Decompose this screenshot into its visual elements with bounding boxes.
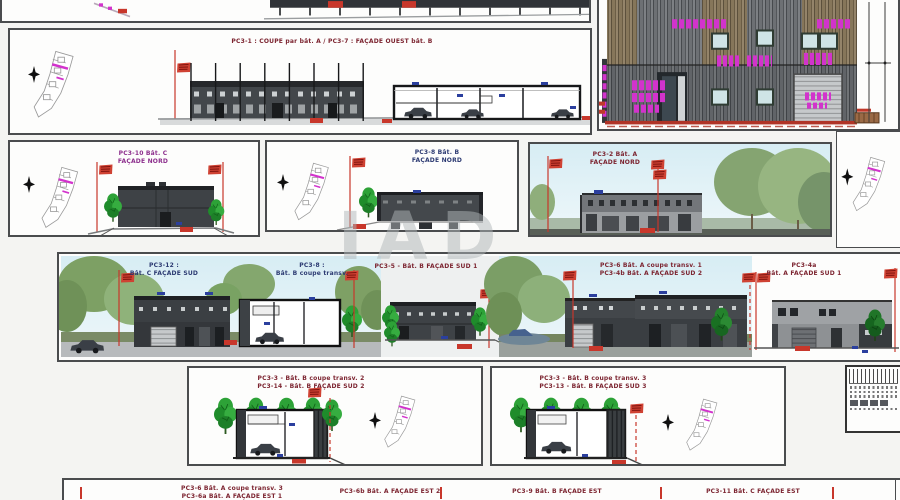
facade-couleur-drawing (599, 0, 898, 129)
dimension-tick (80, 487, 82, 499)
panel-coupe-transv-3: PC3-3 - Bât. B coupe transv. 3PC3-13 - B… (490, 366, 786, 466)
facade-sud-c (134, 292, 230, 347)
key-plan-drawing (837, 132, 900, 247)
legend-text-line (850, 408, 897, 411)
legend-text-line (850, 386, 897, 389)
panel-title: PC3-2 Bât. AFAÇADE NORD (590, 151, 640, 167)
red-label (224, 340, 237, 345)
key-plan-sketch (853, 157, 885, 210)
key-plan-sketch (34, 51, 73, 117)
panel-top-cut (0, 0, 591, 23)
key-plan-sketch (385, 396, 415, 447)
panel-title: PC3-6 Bât. A coupe transv. 3PC3-6a Bât. … (181, 485, 283, 500)
section (527, 406, 625, 458)
ground-line (88, 228, 234, 234)
panel-title: PC3-1 : COUPE par bât. A / PC3-7 : FAÇAD… (231, 38, 432, 46)
tree-icon (359, 187, 378, 217)
panel-title: PC3-6 Bât. A coupe transv. 1PC3-4b Bât. … (600, 262, 703, 278)
dimension-flag-icon (208, 165, 222, 175)
mini-sketch (94, 3, 130, 16)
facade-nord-a-drawing (530, 144, 830, 235)
tree-icon (214, 398, 237, 434)
dimension-flag-icon (352, 158, 366, 168)
dimension-flag-icon (177, 63, 191, 73)
panel-facade-nord-a: PC3-2 Bât. AFAÇADE NORD (528, 142, 832, 237)
north-arrow-icon (662, 414, 674, 431)
dimension-flag-icon (630, 404, 644, 414)
panel-title: PC3-6b Bât. A FAÇADE EST 2 (340, 488, 441, 496)
panel-title: PC3-8 :Bât. B coupe transv. (276, 262, 348, 278)
panel-facades-sud: PC3-12 :Bât. C FAÇADE SUD PC3-8 :Bât. B … (57, 252, 900, 362)
panel-title: PC3-3 - Bât. B coupe transv. 3PC3-13 - B… (539, 375, 646, 391)
panel-facade-nord-b: PC3-8 Bât. BFAÇADE NORD (265, 140, 519, 232)
panel-title: PC3-10 Bât. CFAÇADE NORD (118, 150, 168, 166)
dimension-flag-icon (653, 170, 667, 180)
dimension-flag-icon (742, 273, 756, 283)
north-arrow-icon (277, 174, 289, 191)
dimension-flag-icon (651, 160, 665, 170)
dimension-lines (865, 2, 891, 122)
coupe-transv-b (240, 297, 340, 346)
panel-facade-nord-c: PC3-10 Bât. CFAÇADE NORD (8, 140, 260, 237)
panel-coupe-a-facade-ouest-b: PC3-1 : COUPE par bât. A / PC3-7 : FAÇAD… (8, 28, 592, 135)
dimension-flag-icon (563, 271, 577, 281)
sheet-edge-line (895, 480, 897, 500)
key-plan-sketch (295, 163, 328, 219)
legend-blocks-row (850, 400, 897, 406)
legend-symbols-row (849, 369, 898, 384)
red-label (457, 344, 472, 349)
red-label (589, 346, 603, 351)
facade-ouest-b (190, 63, 364, 121)
legend-text-line (850, 395, 897, 398)
north-arrow-icon (369, 412, 381, 429)
red-label (640, 228, 655, 233)
north-arrow-icon (23, 176, 35, 193)
panel-title: PC3-5 - Bât. B FAÇADE SUD 1 (375, 263, 478, 271)
red-label (292, 459, 306, 464)
section (237, 406, 327, 458)
dimension-flag-icon (99, 165, 113, 175)
building (580, 190, 702, 233)
top-cut-drawing (2, 0, 589, 21)
panel-title: PC3-12 :Bât. C FAÇADE SUD (130, 262, 198, 278)
red-label (353, 224, 366, 229)
dimension-tick (832, 487, 834, 499)
elevation-base (264, 0, 589, 19)
panel-facade-couleur (597, 0, 900, 131)
stair-structure (855, 109, 879, 123)
building (118, 182, 214, 227)
panel-title: PC3-4aBât. A FAÇADE SUD 1 (766, 262, 841, 278)
facade-sud-b1 (390, 302, 476, 340)
panel-coupe-transv-2: PC3-3 - Bât. B coupe transv. 2PC3-14 - B… (187, 366, 483, 466)
north-arrow-icon (28, 66, 40, 83)
dimension-flag-icon (884, 269, 898, 279)
north-arrow-icon (841, 168, 853, 185)
panel-title: PC3-9 Bât. B FAÇADE EST (512, 488, 602, 496)
legend-text-line (850, 391, 897, 394)
red-label (795, 346, 810, 351)
red-label (180, 227, 193, 232)
building (377, 190, 483, 230)
key-plan (28, 51, 73, 117)
facade-nord-b-drawing (267, 142, 517, 230)
panel-title: PC3-8 Bât. BFAÇADE NORD (412, 149, 462, 165)
dimension-tick (660, 487, 662, 499)
dimension-flag-icon (549, 159, 563, 169)
key-plan-sketch (42, 167, 78, 227)
panel-bottom-cut: PC3-6 Bât. A coupe transv. 3PC3-6a Bât. … (62, 478, 900, 500)
coupe-bat-a (394, 86, 580, 119)
plan-sheet: PC3-1 : COUPE par bât. A / PC3-7 : FAÇAD… (0, 0, 900, 500)
key-plan-sketch (687, 399, 717, 450)
red-label (612, 460, 626, 464)
panel-title: PC3-3 - Bât. B coupe transv. 2PC3-14 - B… (257, 375, 364, 391)
panel-key-plan (836, 131, 900, 248)
panel-legend-table (845, 365, 900, 433)
panel-title: PC3-11 Bât. C FAÇADE EST (706, 488, 800, 496)
